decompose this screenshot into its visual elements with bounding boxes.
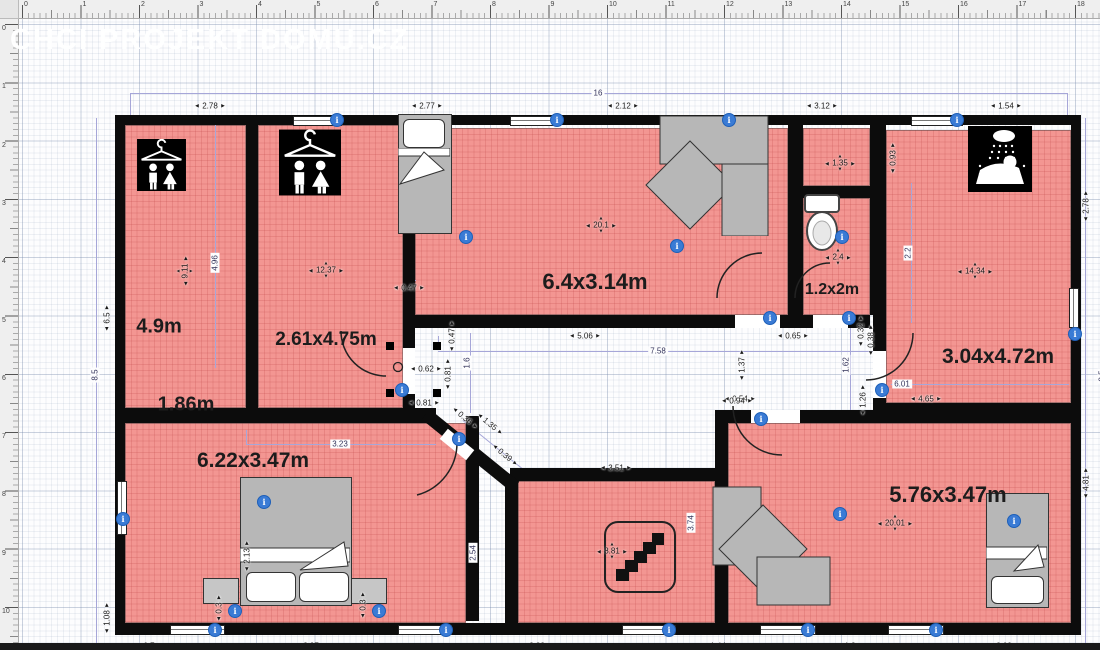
toilet-icon[interactable] [802,194,842,252]
info-icon[interactable]: i [1007,514,1021,528]
room-size-label: 6.4x3.14m [542,269,647,295]
room-area-label: ▲◄ 20.01 ►▼ [877,515,913,532]
room-area-label: ▲◄ 2.4 ►▼ [824,249,852,266]
wardrobe-icon[interactable] [137,139,186,191]
info-icon[interactable]: i [395,383,409,397]
ruler-corner [0,0,19,19]
ruler-number: 16 [960,1,968,8]
ruler-number: 12 [726,1,734,8]
room-area-label: ▲◄ 8.81 ►▼ [596,543,628,560]
info-icon[interactable]: i [439,623,453,637]
room-size-label: 3.04x4.72m [942,345,1054,369]
dimension-label: ◄ 4.65 ► [910,395,942,404]
dimension-label: ◄ 1.08 ► [103,602,112,634]
ruler-number: 11 [668,1,675,8]
pillow [246,572,296,602]
dimension-label: ◄ 1.54 ► [990,102,1022,111]
ruler-number: 15 [902,1,910,8]
ruler-number: 6 [375,1,379,8]
floorplanner-app: 0123456789101112131415161718 01234567891… [0,0,1100,650]
dimension-label: 8.5 [91,367,100,382]
dimension-label: ◄ 0.47 ► [448,320,457,352]
info-icon[interactable]: i [835,230,849,244]
dimension-line [891,384,1069,385]
ruler-number: 7 [434,1,438,8]
info-icon[interactable]: i [459,230,473,244]
room-area-label: ▲◄ 9.11 ►▼ [177,255,194,286]
dimension-label: ◄ 0.47 ► [393,284,425,293]
ruler-vertical[interactable]: 012345678910 [0,18,19,650]
wall [800,410,1071,423]
selection-handle[interactable] [433,389,441,397]
ruler-number: 2 [2,142,6,149]
nightstand[interactable] [351,578,387,604]
dimension-label: ◄ 2.12 ► [607,102,639,111]
dimension-label: ◄ 0.62 ► [410,365,442,374]
dimension-label: 1.6 [463,355,472,370]
info-icon[interactable]: i [801,623,815,637]
info-icon[interactable]: i [929,623,943,637]
ruler-number: 5 [317,1,321,8]
dimension-label: 2.2 [904,245,913,260]
room-area-label: ▲◄ 14.34 ►▼ [957,263,993,280]
corner-sofa[interactable] [705,483,835,609]
room-size-label: 1.2x2m [805,281,859,299]
selection-handle[interactable] [386,342,394,350]
room-area-label: ▲◄ 20.1 ►▼ [585,217,617,234]
info-icon[interactable]: i [670,239,684,253]
dimension-label: ◄ 2.13 ► [243,540,252,572]
info-icon[interactable]: i [875,383,889,397]
dimension-label: 6.01 [892,380,912,389]
info-icon[interactable]: i [257,495,271,509]
wall [780,315,788,328]
dimension-label: ◄ 2.78 ► [1082,190,1091,222]
info-icon[interactable]: i [228,604,242,618]
corner-sofa[interactable] [640,112,774,236]
window[interactable] [117,481,127,535]
ruler-number: 14 [843,1,851,8]
dimension-label: ◄ 5.06 ► [569,332,601,341]
selection-handle[interactable] [433,342,441,350]
ruler-number: 8 [2,491,6,498]
info-icon[interactable]: i [722,113,736,127]
dimension-line [215,125,216,368]
info-icon[interactable]: i [330,113,344,127]
ruler-ticks [22,0,1100,18]
wall [246,115,258,408]
dimension-label: ◄ 1.26 ► [859,384,868,416]
room-size-label: 6.22x3.47m [197,449,309,473]
ruler-horizontal[interactable]: 0123456789101112131415161718 [18,0,1100,19]
ruler-number: 9 [551,1,555,8]
room-size-label: 2.61x4.75m [275,329,376,351]
wall [115,115,125,635]
room-size-label: 5.76x3.47m [889,482,1006,508]
pillow [299,572,349,602]
wall [870,115,886,315]
ruler-number: 10 [2,608,10,615]
info-icon[interactable]: i [452,432,466,446]
bottom-bar [0,643,1100,650]
dimension-label: ◄ 0.38 ► [867,324,876,356]
dimension-label: 4.96 [211,253,220,273]
dimension-label: ◄ 3.51 ► [600,464,632,473]
dimension-label: 3.23 [330,440,350,449]
dimension-label: ◄ 2.78 ► [194,102,226,111]
ruler-number: 0 [2,25,6,32]
wall [505,478,518,623]
bed-sheet-fold [986,543,1047,575]
shower-icon[interactable] [968,126,1032,192]
bed-sheet-fold [398,148,450,188]
ruler-number: 9 [2,550,6,557]
ruler-number: 17 [1019,1,1027,8]
ruler-number: 10 [609,1,617,8]
info-icon[interactable]: i [372,604,386,618]
wall [803,315,813,328]
dimension-label: ◄ 0.3 ► [359,591,368,619]
dimension-label: ◄ 0.94 ► [721,397,753,406]
dimension-label: 1.62 [842,355,851,375]
info-icon[interactable]: i [116,512,130,526]
dimension-label: 2.54 [469,543,478,563]
ruler-number: 8 [492,1,496,8]
dimension-line [96,118,97,650]
dimension-label: ◄ 0.81 ► [444,358,453,390]
dimension-line [470,333,471,413]
pillow [403,119,445,148]
dimension-label: ◄ 3.12 ► [806,102,838,111]
room-area-label: ▲◄ 12.37 ►▼ [308,262,344,279]
wardrobe-icon[interactable] [279,129,341,196]
ruler-number: 0 [24,1,28,8]
dimension-line [246,430,247,444]
info-icon[interactable]: i [833,507,847,521]
drawing-canvas[interactable]: ◄ 2.78 ►◄ 2.77 ►◄ 2.12 ►◄ 3.12 ►◄ 1.54 ►… [18,18,1100,650]
ruler-number: 3 [2,200,6,207]
room-area-label: ▲◄ 1.35 ►▼ [824,155,856,172]
dimension-label: 7.58 [648,347,668,356]
info-icon[interactable]: i [1068,327,1082,341]
dimension-label: 16 [592,89,605,98]
dimension-label: ◄ 0.81 ► [408,399,440,408]
ruler-number: 2 [141,1,145,8]
dimension-label: ◄ 1.37 ► [738,349,747,381]
info-icon[interactable]: i [754,412,768,426]
info-icon[interactable]: i [950,113,964,127]
info-icon[interactable]: i [763,311,777,325]
info-icon[interactable]: i [842,311,856,325]
dimension-label: ◄ 0.3 ► [215,594,224,622]
wall [788,115,803,328]
ruler-number: 18 [1077,1,1085,8]
dimension-label: ◄ 2.77 ► [411,102,443,111]
info-icon[interactable]: i [550,113,564,127]
ruler-number: 13 [785,1,793,8]
room-size-label: 1.86m [158,394,215,417]
room-size-label: 4.9m [136,316,182,339]
ruler-number: 3 [200,1,204,8]
dimension-label: 3.74 [687,513,696,533]
ruler-number: 1 [2,83,6,90]
info-icon[interactable]: i [662,623,676,637]
selection-handle[interactable] [386,389,394,397]
ruler-number: 7 [2,433,6,440]
dimension-label: ◄ 0.32 ► [857,315,866,347]
ruler-number: 1 [83,1,87,8]
dimension-label: ◄ 6.5 ► [103,304,112,332]
pillow [991,576,1044,604]
ruler-number: 4 [258,1,262,8]
watermark: CHCI PROJEKT DOMU.CZ [10,24,409,57]
wall [1071,115,1081,635]
ruler-number: 5 [2,317,6,324]
ruler-number: 6 [2,375,6,382]
info-icon[interactable]: i [208,623,222,637]
dimension-label: ◄ 4.81 ► [1082,467,1091,499]
dimension-label: ◄ 0.93 ► [889,142,898,174]
window[interactable] [1069,288,1079,328]
dimension-label: ◄ 0.65 ► [777,332,809,341]
ruler-number: 4 [2,258,6,265]
